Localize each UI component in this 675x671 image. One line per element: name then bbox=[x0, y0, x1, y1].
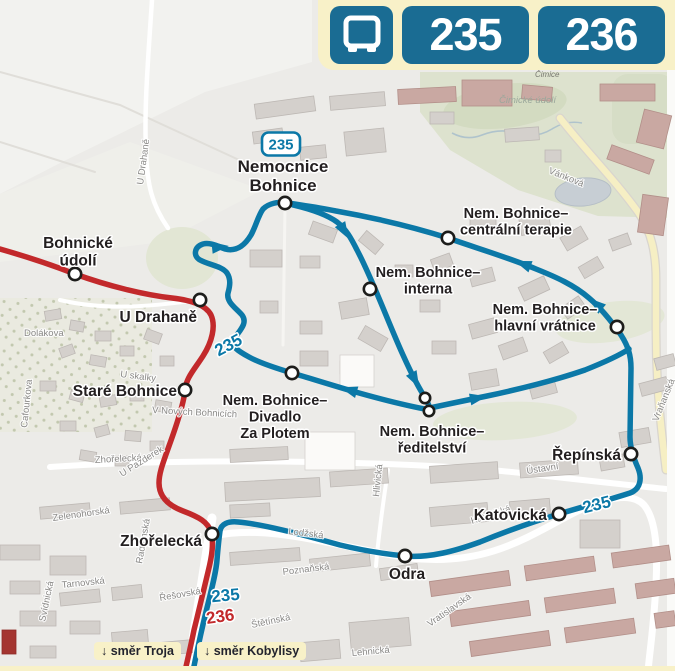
stop-marker-u-drahan bbox=[194, 294, 206, 306]
building bbox=[69, 320, 85, 332]
building bbox=[398, 86, 457, 104]
route-badge-236: 236 bbox=[538, 6, 665, 64]
bus-icon bbox=[330, 6, 393, 64]
transit-map-page: U DrahaněDolákovaCafourkovaU skalkyV Nov… bbox=[0, 0, 675, 671]
building bbox=[545, 150, 561, 162]
building bbox=[469, 631, 550, 657]
building bbox=[609, 233, 632, 251]
direction-label-sm-r-troja: ↓ směr Troja bbox=[94, 642, 181, 660]
stop-marker-bohnick-dol bbox=[69, 268, 81, 280]
building bbox=[329, 92, 385, 111]
building bbox=[637, 194, 668, 235]
building bbox=[10, 581, 40, 594]
stop-marker-star-bohnice bbox=[179, 384, 191, 396]
down-arrow-icon: ↓ bbox=[204, 644, 214, 658]
building bbox=[420, 300, 440, 312]
stop-label-nemocnice-bohnice: NemocniceBohnice bbox=[238, 157, 329, 195]
stop-marker-nem-bohnice-centr-ln-terapie bbox=[442, 232, 454, 244]
header-route-bar: 235 236 bbox=[318, 0, 675, 70]
building bbox=[30, 646, 56, 658]
building bbox=[358, 230, 383, 254]
down-arrow-icon: ↓ bbox=[101, 644, 111, 658]
building bbox=[300, 321, 322, 334]
building bbox=[578, 256, 604, 278]
street-name-lehnick: Lehnická bbox=[351, 645, 391, 659]
building bbox=[125, 430, 142, 441]
route-number-label-236: 236 bbox=[205, 605, 236, 628]
street-name-pozna-sk: Poznaňská bbox=[282, 561, 331, 578]
building bbox=[469, 369, 500, 391]
building bbox=[580, 520, 620, 548]
stop-label-nem-bohnice-centr-ln-terapie: Nem. Bohnice–centrální terapie bbox=[460, 206, 572, 238]
building bbox=[111, 584, 142, 600]
building bbox=[0, 545, 40, 560]
building bbox=[654, 611, 675, 629]
building bbox=[160, 356, 174, 366]
direction-label-sm-r-kobylisy: ↓ směr Kobylisy bbox=[197, 642, 306, 660]
building bbox=[564, 618, 635, 643]
building bbox=[120, 346, 134, 356]
building bbox=[544, 588, 615, 613]
building bbox=[70, 621, 100, 634]
route-number-label-235: 235 bbox=[211, 585, 241, 606]
building bbox=[518, 276, 550, 301]
building bbox=[498, 337, 528, 360]
stop-label-odra: Odra bbox=[389, 566, 426, 583]
route-number-label-235: 235 bbox=[581, 492, 613, 517]
building bbox=[260, 301, 278, 313]
building bbox=[250, 250, 282, 267]
building bbox=[300, 351, 328, 366]
stop-marker-odra bbox=[399, 550, 411, 562]
stop-label-nem-bohnice-interna: Nem. Bohnice–interna bbox=[376, 265, 481, 297]
route-235-east-link-line bbox=[430, 349, 629, 408]
area-label-imick-dol: Čimické údolí bbox=[499, 95, 557, 106]
building bbox=[230, 503, 271, 518]
street-name-dol-kova: Dolákova bbox=[24, 328, 64, 339]
building bbox=[344, 128, 386, 156]
direction-label-text: směr Troja bbox=[111, 644, 174, 658]
building bbox=[230, 446, 289, 462]
stop-marker-nemocnice-bohnice bbox=[279, 197, 291, 209]
stop-marker-nem-bohnice-interna bbox=[364, 283, 376, 295]
building bbox=[50, 556, 86, 575]
stop-marker-nem-bohnice-editelstv-2 bbox=[424, 406, 434, 416]
stop-marker-nem-bohnice-hlavn-vr-tnice bbox=[611, 321, 623, 333]
building bbox=[619, 428, 651, 448]
map-bottom-edge bbox=[0, 666, 675, 671]
stop-route-badge-layer: 235 bbox=[262, 133, 300, 156]
building bbox=[95, 331, 111, 341]
building bbox=[340, 355, 374, 387]
bus-icon-glyph bbox=[340, 14, 384, 56]
stop-marker-katovick bbox=[553, 508, 565, 520]
map-canvas: U DrahaněDolákovaCafourkovaU skalkyV Nov… bbox=[0, 0, 675, 671]
stop-marker-zho-eleck bbox=[206, 528, 218, 540]
building bbox=[59, 589, 100, 606]
building bbox=[305, 432, 355, 470]
building bbox=[2, 630, 16, 654]
building bbox=[432, 341, 456, 354]
building bbox=[60, 421, 76, 431]
stop-marker-nem-bohnice-divadlo-za-plotem bbox=[286, 367, 298, 379]
building bbox=[429, 571, 510, 597]
stop-label-ep-nsk: Řepínská bbox=[552, 446, 621, 464]
direction-label-text: směr Kobylisy bbox=[214, 644, 299, 658]
stop-label-nem-bohnice-hlavn-vr-tnice: Nem. Bohnice–hlavní vrátnice bbox=[493, 302, 598, 334]
building bbox=[339, 298, 370, 320]
building bbox=[225, 478, 321, 502]
stop-label-nem-bohnice-editelstv: Nem. Bohnice–ředitelství bbox=[380, 424, 485, 456]
stop-label-katovick: Katovická bbox=[474, 507, 548, 524]
stop-label-zho-eleck: Zhořelecká bbox=[120, 533, 202, 550]
building bbox=[40, 381, 56, 391]
stop-marker-ep-nsk bbox=[625, 448, 637, 460]
building bbox=[254, 96, 316, 119]
building bbox=[300, 256, 320, 268]
building bbox=[230, 548, 301, 566]
street-name-t-t-nsk: Štětínská bbox=[250, 612, 292, 631]
building bbox=[505, 127, 540, 142]
building bbox=[543, 341, 569, 363]
building bbox=[308, 221, 337, 243]
building bbox=[469, 318, 498, 339]
building bbox=[524, 556, 595, 581]
stop-route-badge-number: 235 bbox=[268, 137, 293, 154]
stop-label-u-drahan: U Drahaně bbox=[119, 309, 197, 326]
stop-marker-nem-bohnice-editelstv-1 bbox=[420, 393, 430, 403]
route-badge-235: 235 bbox=[402, 6, 529, 64]
building bbox=[611, 545, 671, 568]
building bbox=[430, 112, 454, 124]
stop-label-star-bohnice: Staré Bohnice bbox=[73, 383, 178, 400]
area-label-imice: Čimice bbox=[535, 70, 560, 79]
building bbox=[600, 84, 655, 101]
building bbox=[358, 326, 388, 352]
